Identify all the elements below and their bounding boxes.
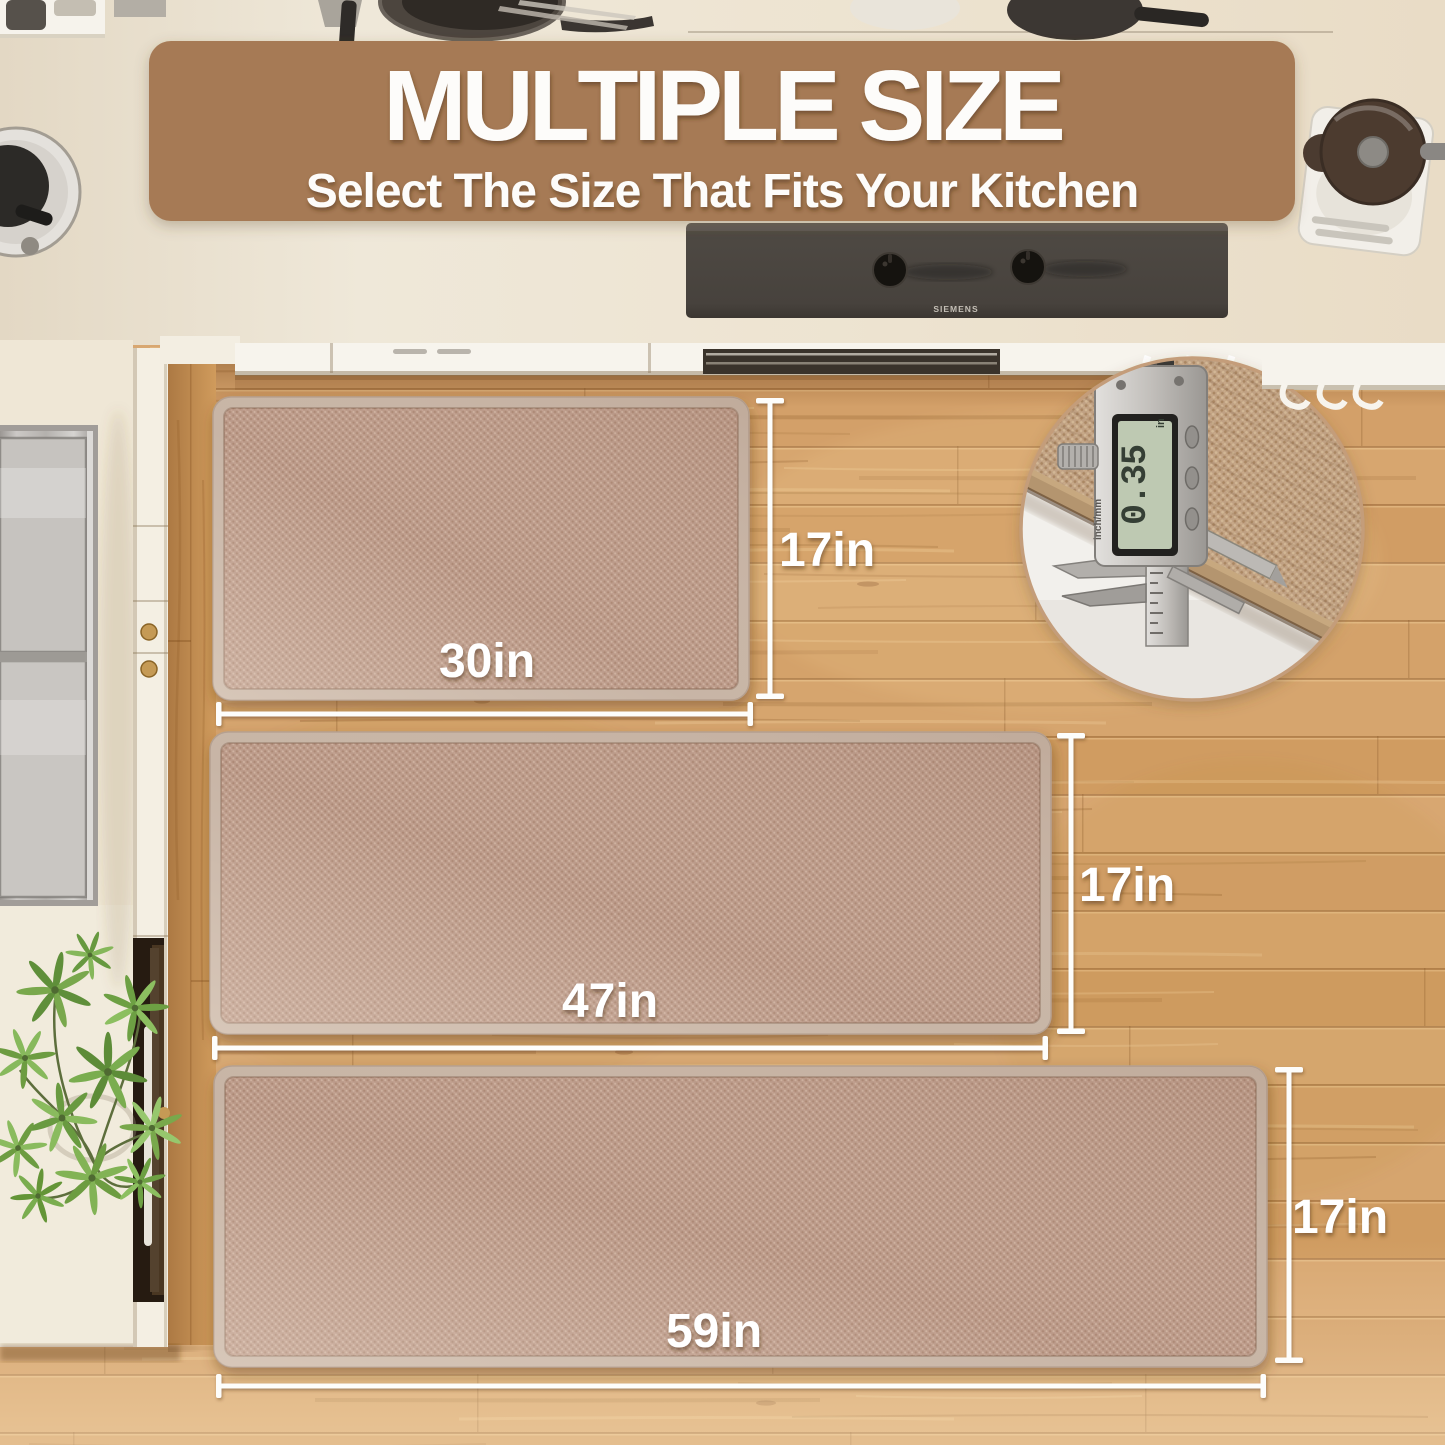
svg-text:17in: 17in (779, 524, 875, 577)
svg-text:17in: 17in (1079, 859, 1175, 912)
svg-text:SIEMENS: SIEMENS (933, 304, 978, 314)
svg-text:0.35: 0.35 (1116, 445, 1156, 525)
svg-text:Select The Size That Fits Your: Select The Size That Fits Your Kitchen (306, 165, 1138, 218)
svg-text:47in: 47in (562, 975, 658, 1028)
svg-text:MULTIPLE SIZE: MULTIPLE SIZE (383, 50, 1062, 162)
svg-text:59in: 59in (666, 1305, 762, 1358)
svg-text:in: in (1155, 418, 1167, 428)
svg-text:inch/mm: inch/mm (1093, 499, 1104, 540)
svg-text:30in: 30in (439, 635, 535, 688)
svg-text:17in: 17in (1292, 1191, 1388, 1244)
